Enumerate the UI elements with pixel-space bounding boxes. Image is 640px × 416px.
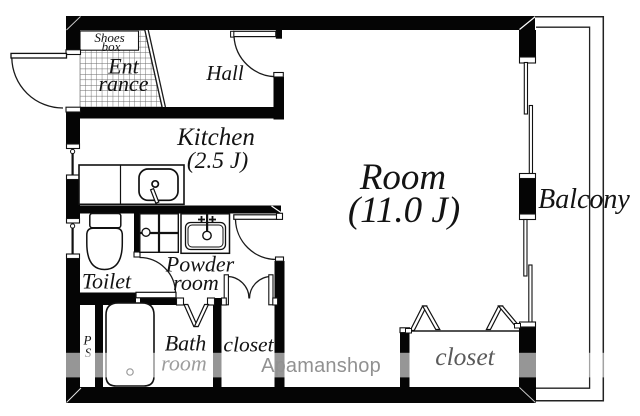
- svg-text:(11.0 J): (11.0 J): [348, 190, 460, 231]
- svg-text:Apamanshop: Apamanshop: [261, 355, 381, 377]
- svg-text:box: box: [102, 39, 121, 54]
- svg-text:Toilet: Toilet: [82, 269, 132, 294]
- svg-text:closet: closet: [435, 342, 495, 371]
- svg-text:Hall: Hall: [205, 61, 244, 85]
- svg-text:(2.5 J): (2.5 J): [187, 148, 249, 174]
- svg-text:Kitchen: Kitchen: [176, 124, 255, 151]
- svg-text:room: room: [173, 270, 219, 295]
- svg-text:rance: rance: [98, 71, 148, 96]
- svg-text:Balcony: Balcony: [538, 184, 630, 215]
